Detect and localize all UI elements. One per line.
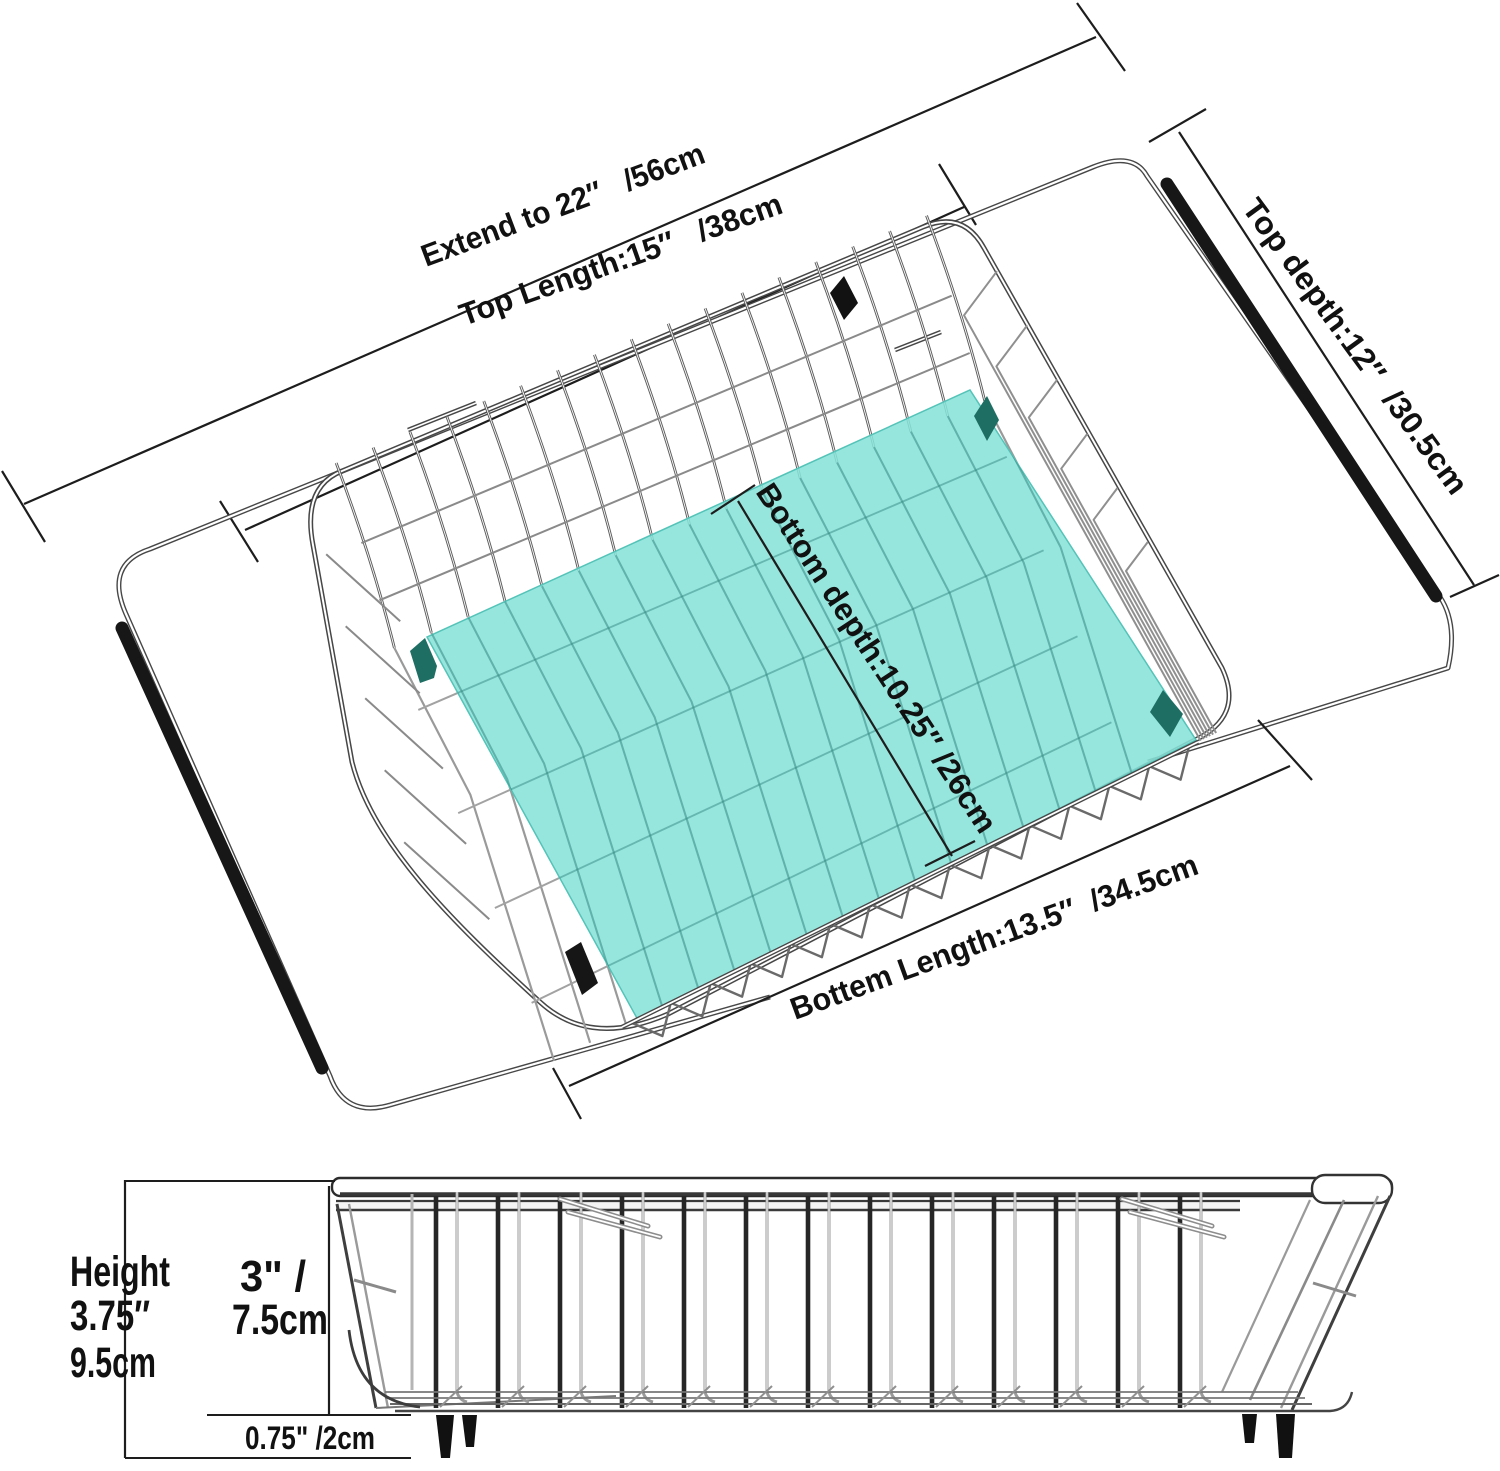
svg-text:3.75″: 3.75″ xyxy=(70,1292,150,1340)
svg-text:7.5cm: 7.5cm xyxy=(232,1296,328,1344)
svg-text:3" /: 3" / xyxy=(240,1252,306,1301)
svg-text:9.5cm: 9.5cm xyxy=(70,1339,156,1387)
svg-text:0.75" /2cm: 0.75" /2cm xyxy=(245,1420,375,1456)
svg-text:Height: Height xyxy=(70,1248,170,1296)
